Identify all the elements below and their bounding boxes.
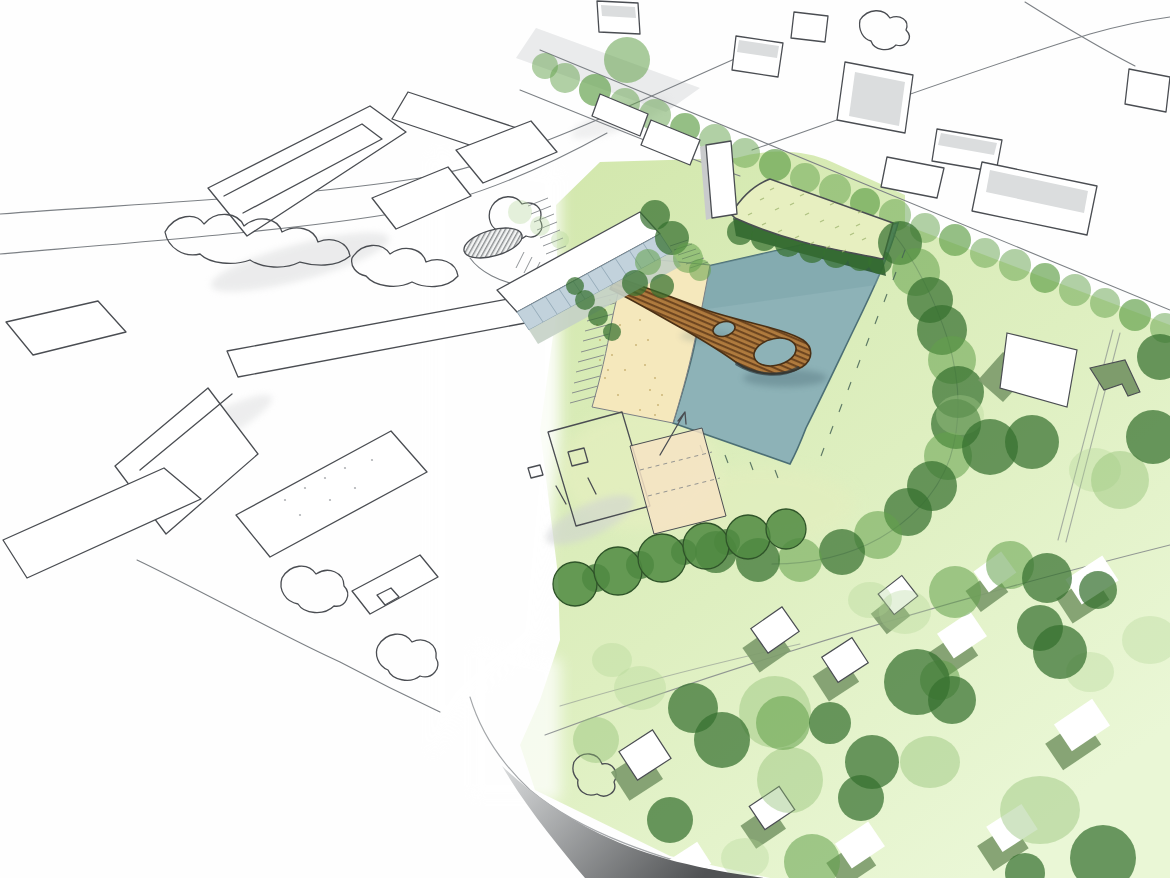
masterplan-sketch-canvas	[0, 0, 1170, 878]
sketch-scene	[0, 0, 1170, 878]
